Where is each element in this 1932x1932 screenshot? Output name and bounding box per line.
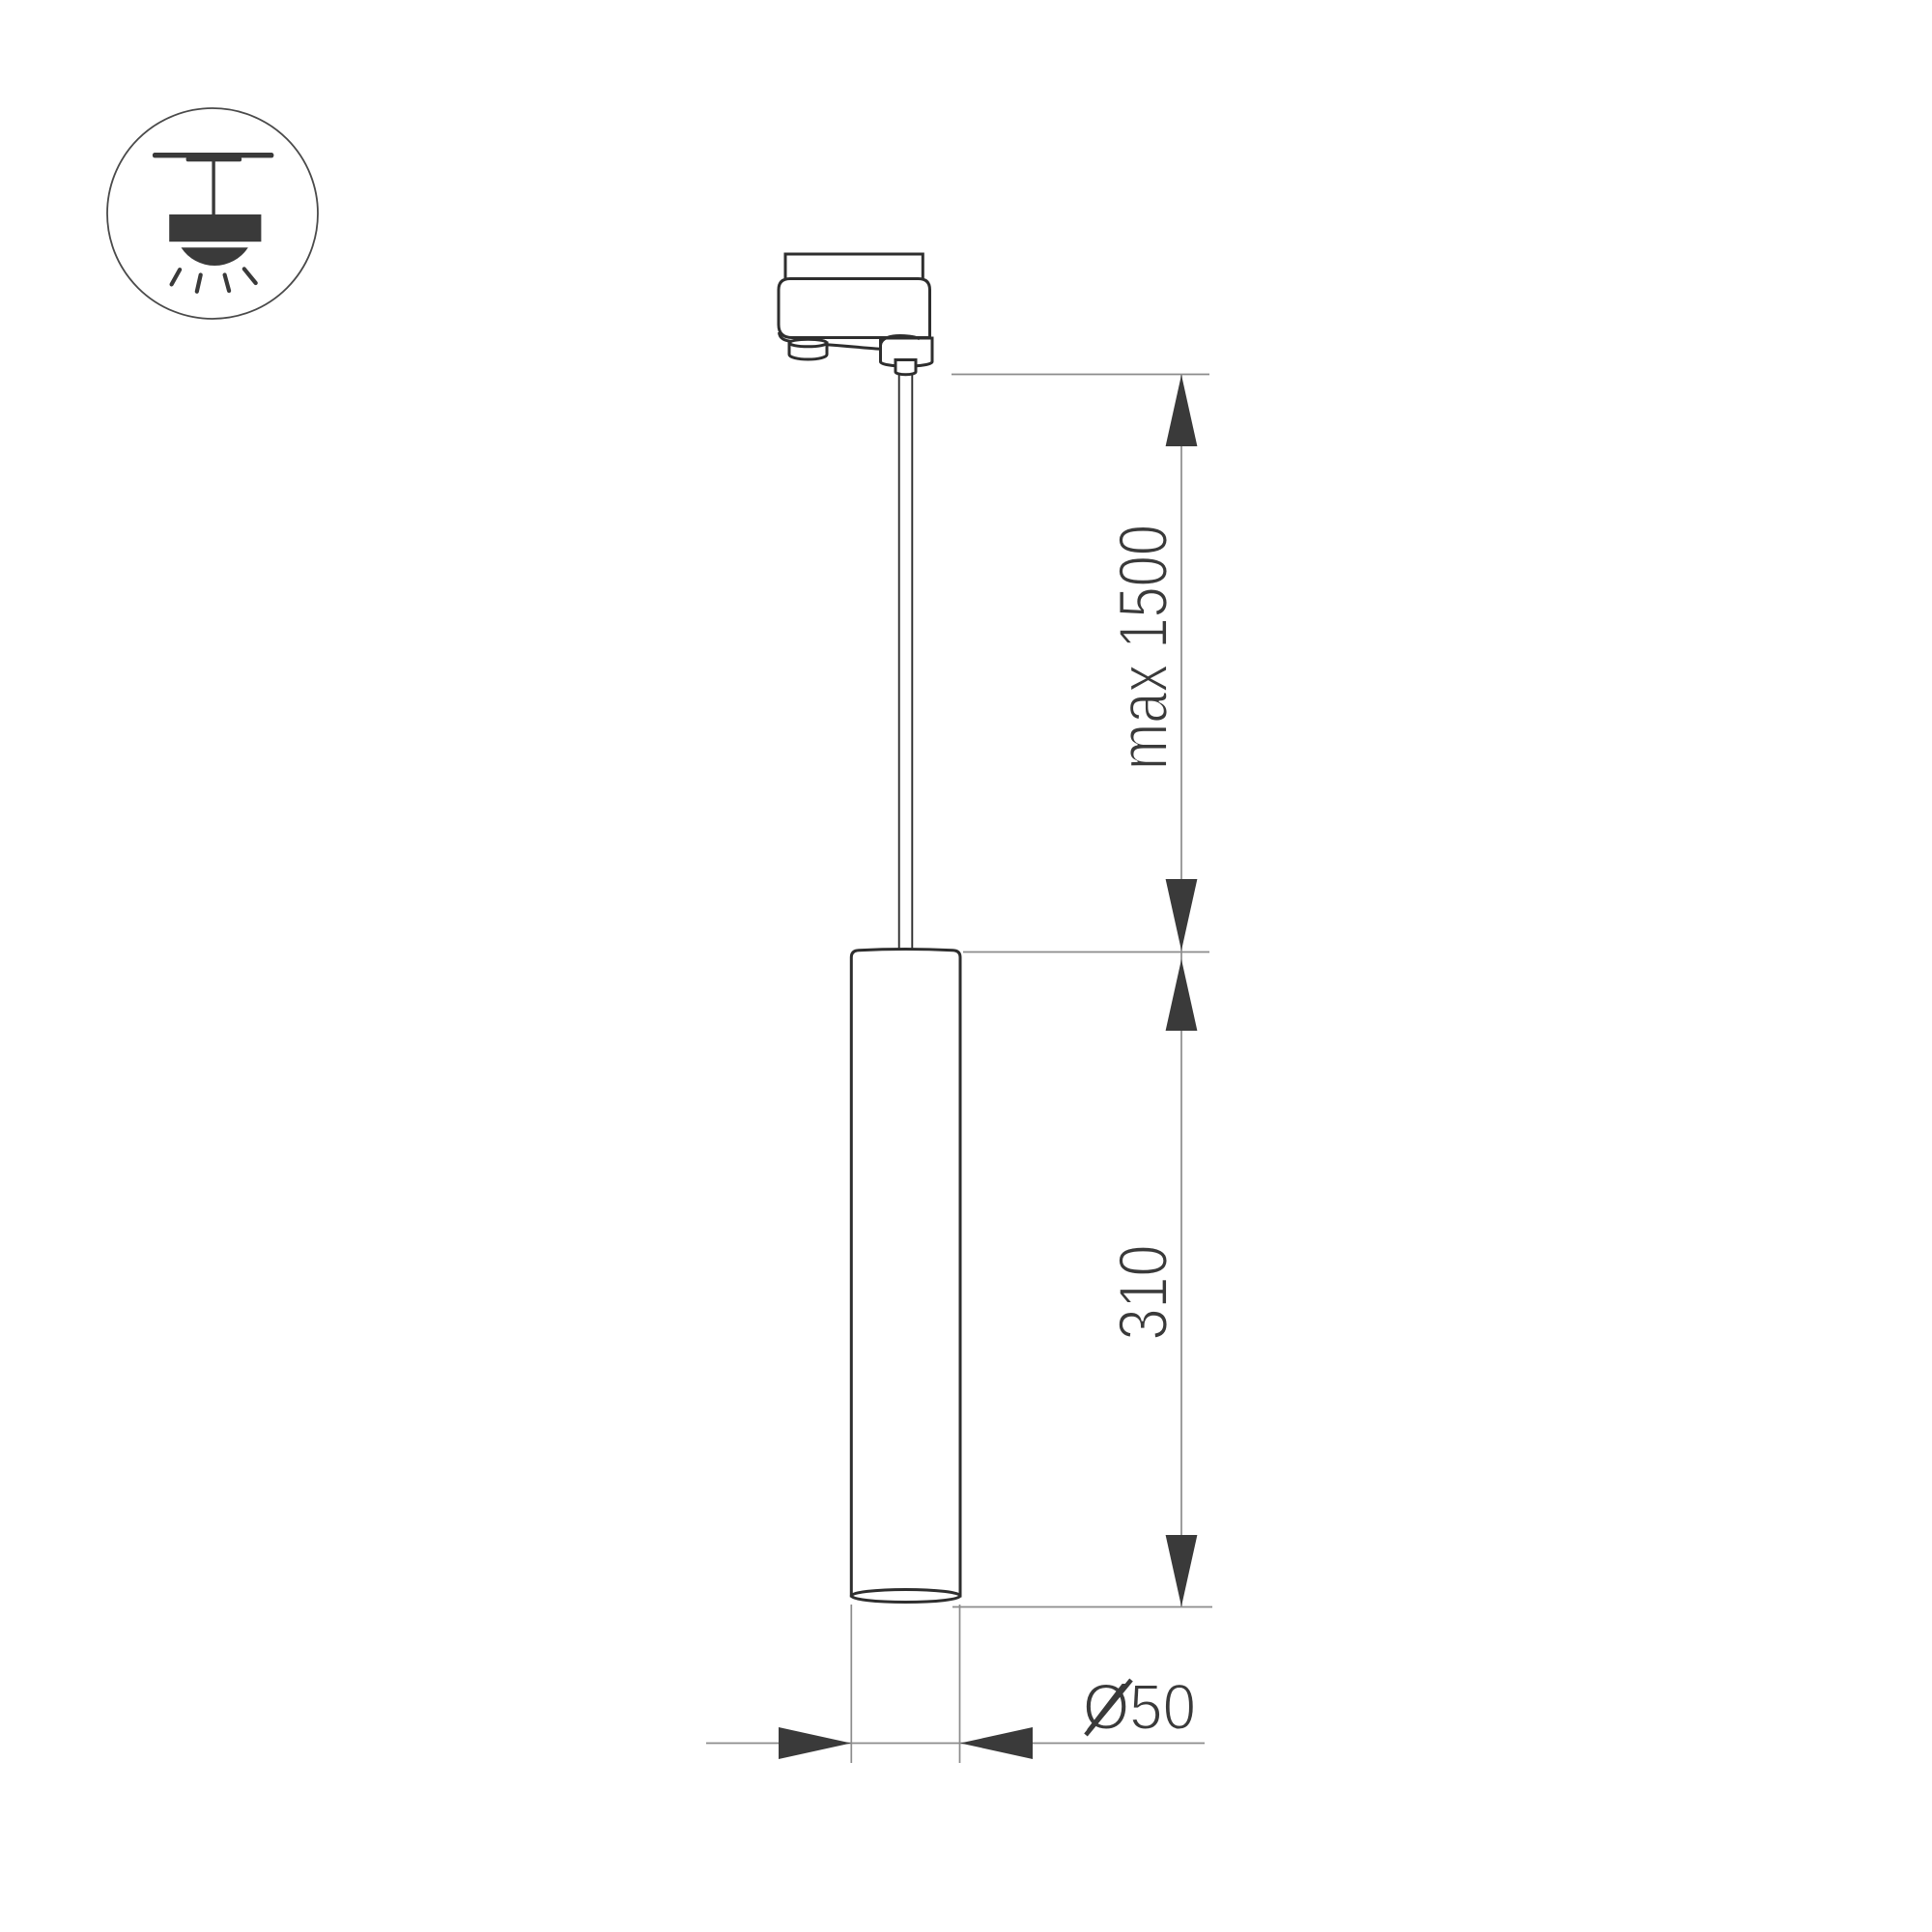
svg-text:max 1500: max 1500 [1106,525,1182,770]
svg-text:310: 310 [1106,1245,1182,1341]
svg-text:Ø50: Ø50 [1083,1671,1196,1744]
